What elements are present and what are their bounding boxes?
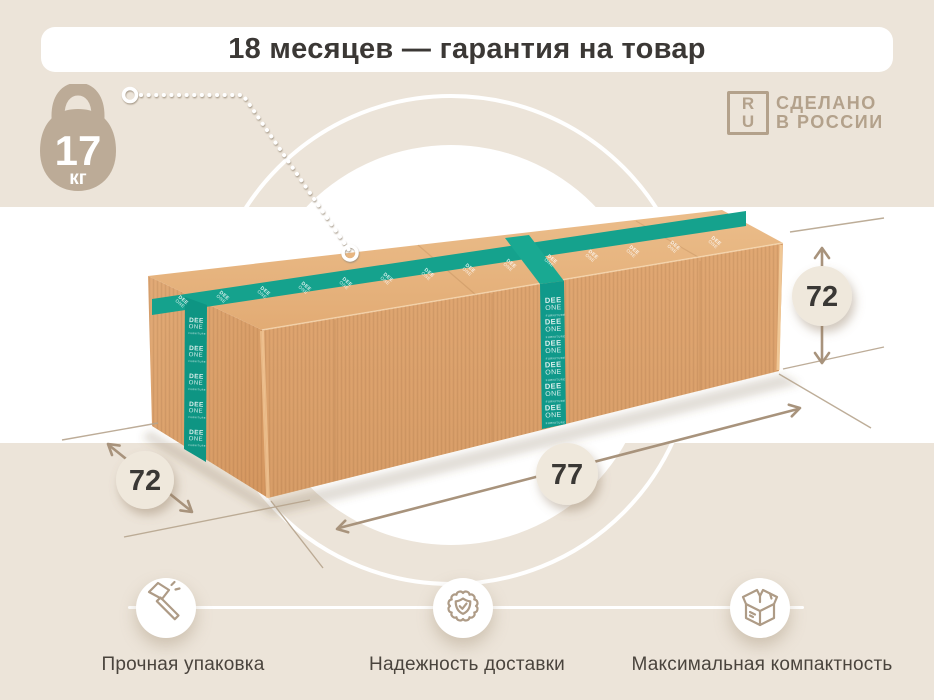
seal-check-icon bbox=[433, 578, 493, 638]
ru-frame-icon: R U bbox=[727, 91, 769, 135]
feature-label-max-compactness: Максимальная компактность bbox=[632, 654, 893, 676]
warranty-banner: 18 месяцев — гарантия на товар bbox=[41, 27, 893, 72]
feature-label-durable-packaging: Прочная упаковка bbox=[102, 654, 265, 676]
warranty-banner-title: 18 месяцев — гарантия на товар bbox=[228, 33, 706, 66]
connector-ring-start bbox=[124, 89, 137, 102]
dimension-depth-value: 72 bbox=[129, 465, 161, 497]
made-in-russia-line1: СДЕЛАНО bbox=[776, 94, 884, 113]
made-in-russia-line2: В РОССИИ bbox=[776, 113, 884, 132]
infographic-stage: DEEONEFURNITUREDEEONEFURNITUREDEEONEFURN… bbox=[0, 0, 934, 700]
package-box-icon bbox=[730, 578, 790, 638]
dimension-height-value: 72 bbox=[806, 281, 838, 313]
feature-delivery-reliability bbox=[433, 578, 493, 638]
weight-value: 17 bbox=[55, 127, 102, 174]
ru-frame-letter-top: R bbox=[742, 95, 754, 113]
dimension-length-value: 77 bbox=[551, 459, 583, 491]
weight-unit: кг bbox=[69, 168, 87, 189]
hammer-icon bbox=[136, 578, 196, 638]
kettlebell-weight-badge: 17 кг bbox=[36, 84, 120, 196]
feature-max-compactness bbox=[730, 578, 790, 638]
feature-label-delivery-reliability: Надежность доставки bbox=[369, 654, 565, 676]
ru-frame-letter-bottom: U bbox=[742, 113, 754, 131]
made-in-russia-logo: R U СДЕЛАНО В РОССИИ bbox=[727, 91, 884, 135]
feature-durable-packaging bbox=[136, 578, 196, 638]
